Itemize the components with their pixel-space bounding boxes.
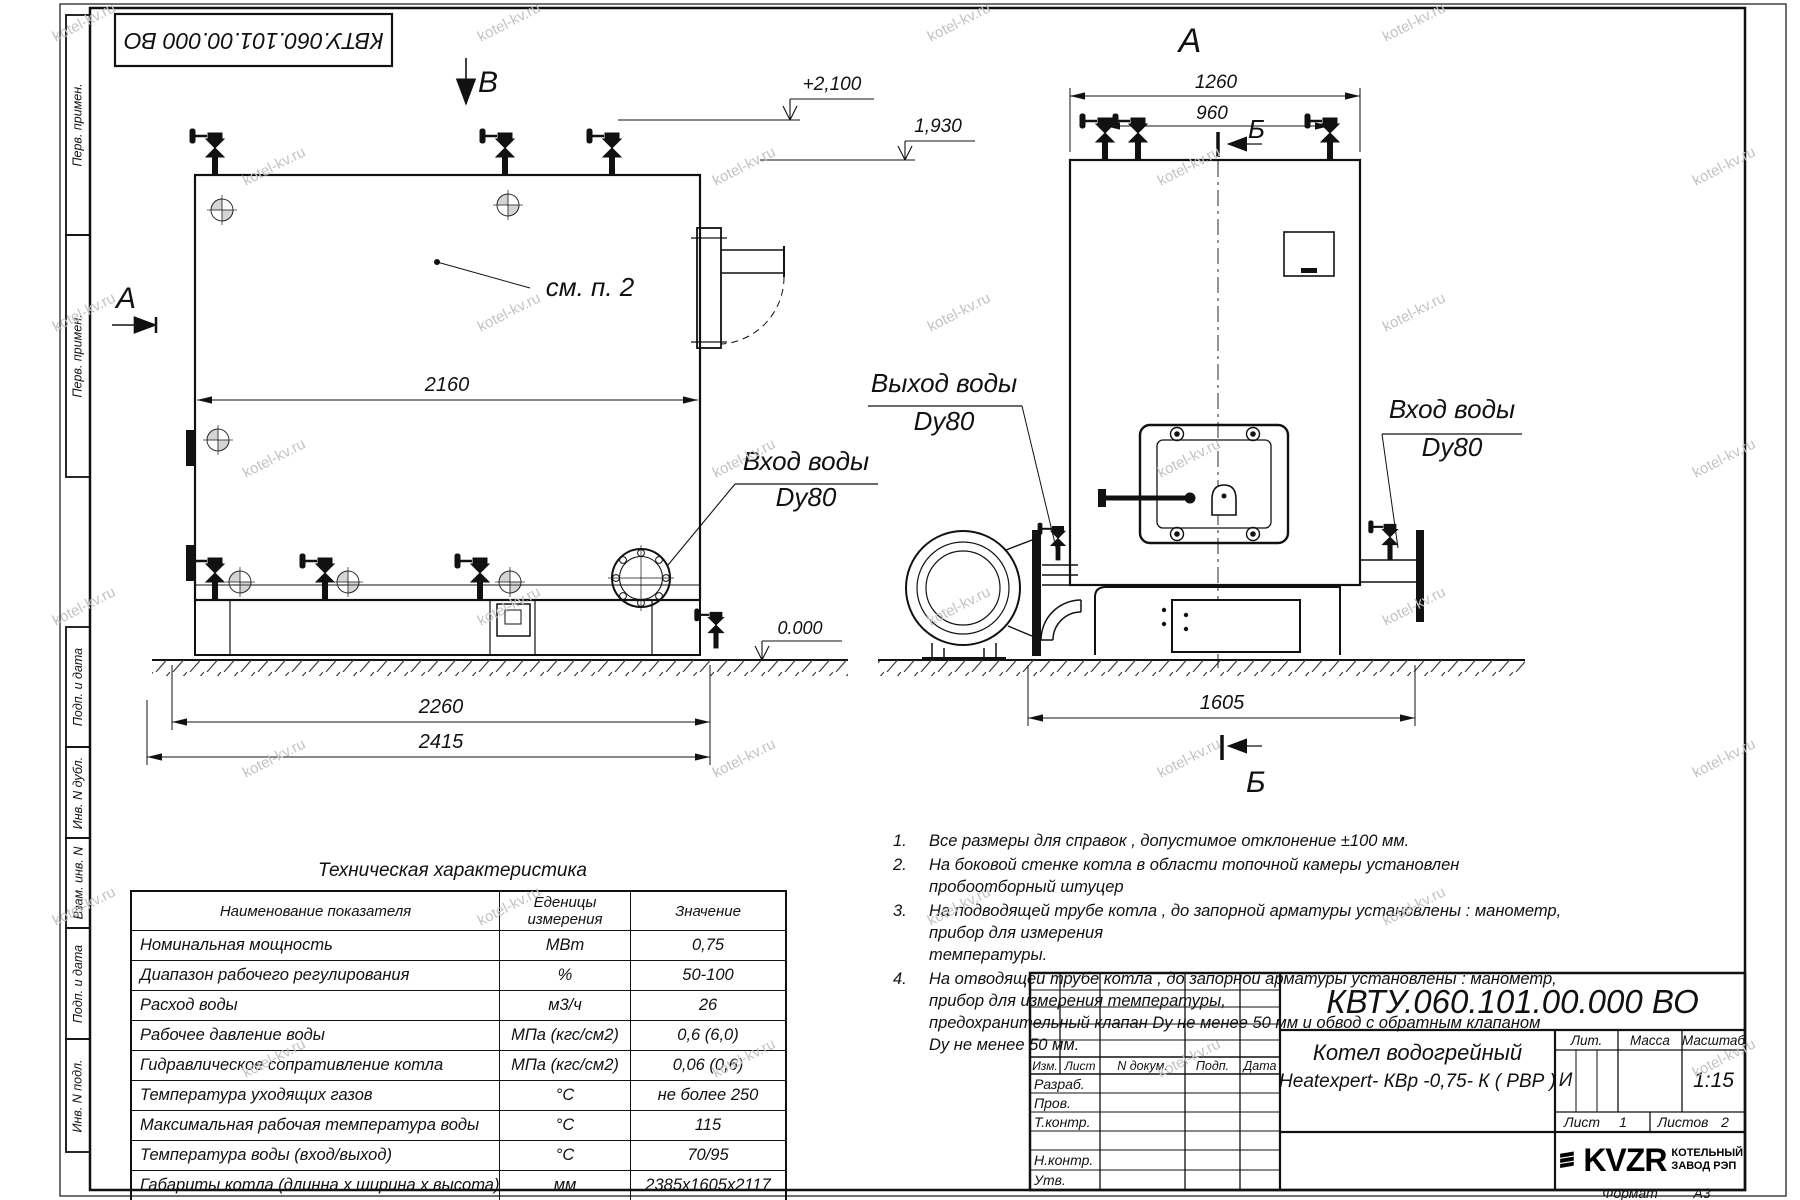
- dim-2160-text: 2160: [424, 374, 470, 396]
- level-mark-zero: 0.000: [755, 618, 842, 660]
- level-mark-1930: 1,930: [760, 116, 975, 160]
- valve-icon: [480, 129, 514, 175]
- ground-line-left: [152, 660, 848, 676]
- note-item: 3. На подводящей трубе котла , до запорн…: [893, 900, 1565, 966]
- outlet-callout: Выход воды Dy80: [868, 368, 1058, 556]
- margin-label-perv-primen-1: Перв. примен.: [66, 15, 90, 235]
- dim-960-text: 960: [1196, 103, 1228, 124]
- sheets-value: 2: [1712, 1112, 1738, 1132]
- row-label-utv: Утв.: [1034, 1170, 1098, 1190]
- dim-1605-text: 1605: [1200, 692, 1245, 714]
- kvzr-logo-caption: КОТЕЛЬНЫЙ ЗАВОД РЭП: [1671, 1147, 1743, 1173]
- inlet-size: Dy80: [776, 482, 837, 512]
- level-1930-text: 1,930: [914, 116, 962, 137]
- sheet-value: 1: [1608, 1112, 1638, 1132]
- dim-2160: 2160: [197, 374, 698, 400]
- mass-header: Масса: [1618, 1030, 1682, 1050]
- margin-label-podp-data-1: Подп. и дата: [66, 627, 90, 747]
- valve-icon: [1305, 114, 1339, 160]
- table-row: Рабочее давление водыМПа (кгс/см2)0,6 (6…: [131, 1021, 786, 1051]
- col-header-sign: Подп.: [1185, 1057, 1240, 1074]
- manufacturer-logo: KVZR КОТЕЛЬНЫЙ ЗАВОД РЭП: [1559, 1134, 1743, 1186]
- lit-header: Лит.: [1555, 1030, 1618, 1050]
- drawing-sheet: 2160 В +2,100 1,930: [0, 0, 1800, 1200]
- flue-duct: [691, 228, 784, 348]
- section-a-marker: А: [112, 282, 156, 333]
- kvzr-logo-icon: [1559, 1143, 1578, 1177]
- row-label-razrab: Разраб.: [1034, 1074, 1098, 1093]
- designation-cell: КВТУ.060.101.00.000 ВО: [1282, 973, 1743, 1030]
- margin-label-podp-data-2: Подп. и дата: [66, 928, 90, 1039]
- product-name-line2: Heatexpert- КВр -0,75- К ( РВР ): [1276, 1068, 1559, 1096]
- inlet-size: Dy80: [1422, 432, 1483, 462]
- col-header-value: Значение: [631, 891, 787, 931]
- inlet-label: Вход воды: [743, 446, 869, 476]
- kvzr-logo-text: KVZR: [1583, 1142, 1666, 1179]
- see-note-callout: см. п. 2: [434, 259, 635, 302]
- table-row: Температура уходящих газов°Сне более 250: [131, 1081, 786, 1111]
- valve-icon: [1080, 114, 1114, 160]
- blower-fan: [906, 531, 1032, 658]
- format-value: А3: [1685, 1186, 1719, 1200]
- margin-label-inv-dubl: Инв. N дубл.: [66, 747, 90, 838]
- tech-table-header-row: Наименование показателя Еденицы измерени…: [131, 891, 786, 931]
- door-bolt-icon: [1171, 428, 1260, 541]
- section-b-bottom-marker: Б: [1222, 735, 1266, 799]
- col-header-list: Лист: [1060, 1057, 1100, 1074]
- top-designation-text: КВТУ.060.101.00.000 ВО: [124, 27, 384, 54]
- sheet-label: Лист: [1560, 1112, 1604, 1132]
- center-mark-icon: [203, 425, 233, 455]
- valve-icon: [587, 129, 621, 175]
- col-header-name: Наименование показателя: [131, 891, 500, 931]
- dim-1260-text: 1260: [1195, 72, 1238, 93]
- view-a-label: А: [1177, 22, 1202, 60]
- table-row: Расход водым3/ч26: [131, 991, 786, 1021]
- dim-2415-text: 2415: [418, 731, 464, 753]
- section-b-bottom-label: Б: [1246, 766, 1266, 799]
- sample-panel: [1284, 232, 1334, 276]
- section-b-marker: В: [466, 58, 498, 104]
- table-row: Диапазон рабочего регулирования%50-100: [131, 961, 786, 991]
- lit-value: И: [1555, 1050, 1576, 1112]
- ground-line-right: [878, 660, 1525, 676]
- left-view: 2160 В +2,100 1,930: [112, 58, 975, 765]
- col-header-doc: N докум.: [1100, 1057, 1185, 1074]
- level-mark-2100: +2,100: [618, 74, 874, 120]
- margin-label-perv-primen-2: Перв. примен.: [66, 235, 90, 477]
- valve-icon: [300, 554, 334, 600]
- center-mark-icon: [493, 190, 523, 220]
- section-a-label: А: [114, 282, 136, 315]
- outlet-label: Выход воды: [871, 368, 1017, 398]
- table-row: Температура воды (вход/выход)°С70/95: [131, 1141, 786, 1171]
- tech-table-title: Техническая характеристика: [130, 860, 775, 882]
- col-header-units: Еденицы измерения: [500, 891, 631, 931]
- center-mark-icon: [333, 567, 363, 597]
- note-item: 2. На боковой стенке котла в области топ…: [893, 854, 1565, 898]
- section-b-label: В: [478, 66, 498, 99]
- row-label-tkontr: Т.контр.: [1034, 1112, 1098, 1131]
- dim-2260-text: 2260: [418, 696, 464, 718]
- door-handle: [1098, 489, 1196, 507]
- see-note-text: см. п. 2: [546, 272, 635, 302]
- product-name-line1: Котел водогрейный: [1282, 1038, 1553, 1068]
- note-item: 1. Все размеры для справок , допустимое …: [893, 830, 1565, 852]
- valve-icon: [1369, 521, 1398, 560]
- support-frame-left: [195, 600, 700, 655]
- scale-value: 1:15: [1682, 1050, 1745, 1112]
- format-label: Формат: [1595, 1186, 1665, 1200]
- margin-label-vzam-inv: Взам. инв. N: [66, 838, 90, 928]
- margin-label-inv-podl: Инв. N подл.: [66, 1039, 90, 1152]
- center-mark-icon: [495, 567, 525, 597]
- level-zero-text: 0.000: [777, 618, 822, 638]
- section-b-top-label: Б: [1248, 114, 1265, 144]
- door-latch: [1212, 485, 1236, 515]
- outlet-size: Dy80: [914, 406, 975, 436]
- valve-icon: [455, 554, 489, 600]
- row-label-prov: Пров.: [1034, 1093, 1098, 1112]
- valve-icon: [1113, 114, 1147, 160]
- valve-icon: [190, 129, 224, 175]
- table-row: Номинальная мощностьМВт0,75: [131, 931, 786, 961]
- center-mark-icon: [225, 567, 255, 597]
- inlet-label: Вход воды: [1389, 394, 1515, 424]
- col-header-izm: Изм.: [1030, 1057, 1060, 1074]
- level-2100-text: +2,100: [803, 74, 862, 95]
- tech-table: Наименование показателя Еденицы измерени…: [130, 890, 787, 1200]
- furnace-door: [1098, 425, 1288, 543]
- scale-header: Масштаб: [1682, 1030, 1745, 1050]
- table-row: Максимальная рабочая температура воды°С1…: [131, 1111, 786, 1141]
- right-view: А 1260 960 Б: [868, 22, 1525, 799]
- row-label-nkontr: Н.контр.: [1034, 1150, 1098, 1170]
- inlet-callout-right-view: Вход воды Dy80: [1382, 394, 1522, 548]
- boiler-body-front: [1070, 160, 1360, 585]
- sheets-label: Листов: [1655, 1112, 1711, 1132]
- top-designation-stamp: КВТУ.060.101.00.000 ВО: [115, 14, 392, 66]
- center-mark-icon: [207, 195, 237, 225]
- table-row: Гидравлическое сопративление котлаМПа (к…: [131, 1051, 786, 1081]
- table-row: Габариты котла (длинна х ширина х высота…: [131, 1171, 786, 1200]
- col-header-date: Дата: [1240, 1057, 1280, 1074]
- support-frame-right: [1095, 587, 1340, 655]
